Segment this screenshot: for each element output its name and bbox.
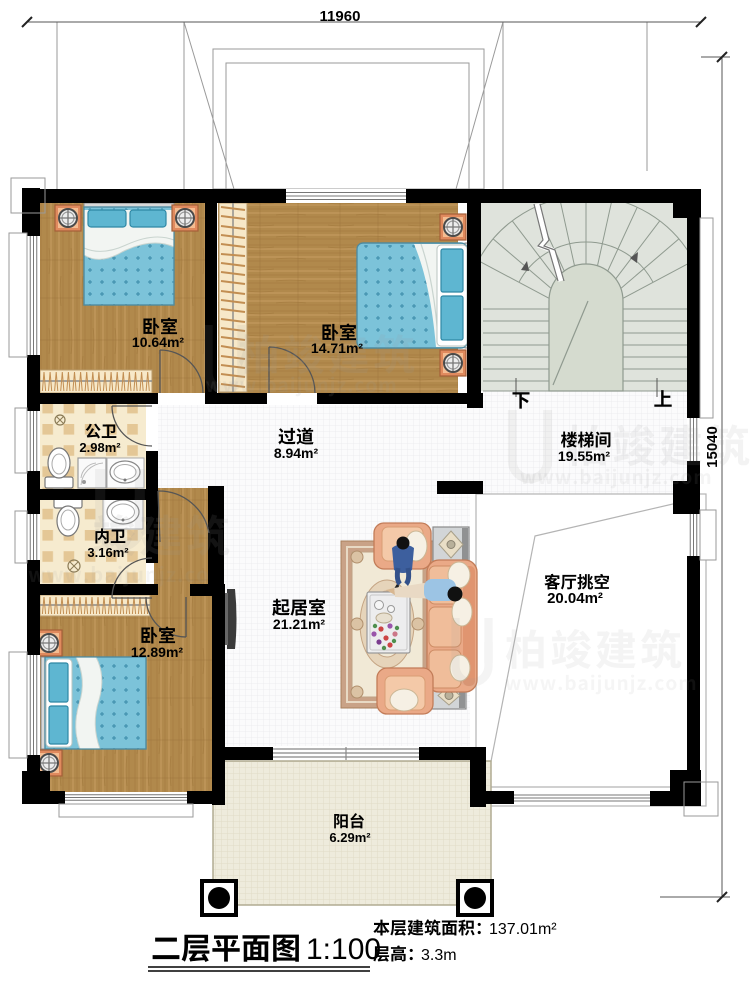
svg-text:11960: 11960 <box>320 8 361 25</box>
svg-text:21.21m²: 21.21m² <box>273 616 325 632</box>
svg-text:1:100: 1:100 <box>306 933 381 966</box>
svg-text:6.29m²: 6.29m² <box>329 830 371 845</box>
svg-text:3.3m: 3.3m <box>421 947 457 964</box>
svg-text:8.94m²: 8.94m² <box>274 445 319 461</box>
svg-text:2.98m²: 2.98m² <box>79 440 121 455</box>
svg-text:137.01m²: 137.01m² <box>489 921 557 938</box>
svg-text:20.04m²: 20.04m² <box>547 590 603 607</box>
svg-text:12.89m²: 12.89m² <box>131 644 183 660</box>
svg-text:10.64m²: 10.64m² <box>132 334 184 350</box>
svg-text:14.71m²: 14.71m² <box>311 340 363 356</box>
svg-text:15040: 15040 <box>704 426 721 468</box>
svg-text:3.16m²: 3.16m² <box>87 545 129 560</box>
svg-text:19.55m²: 19.55m² <box>558 448 610 464</box>
